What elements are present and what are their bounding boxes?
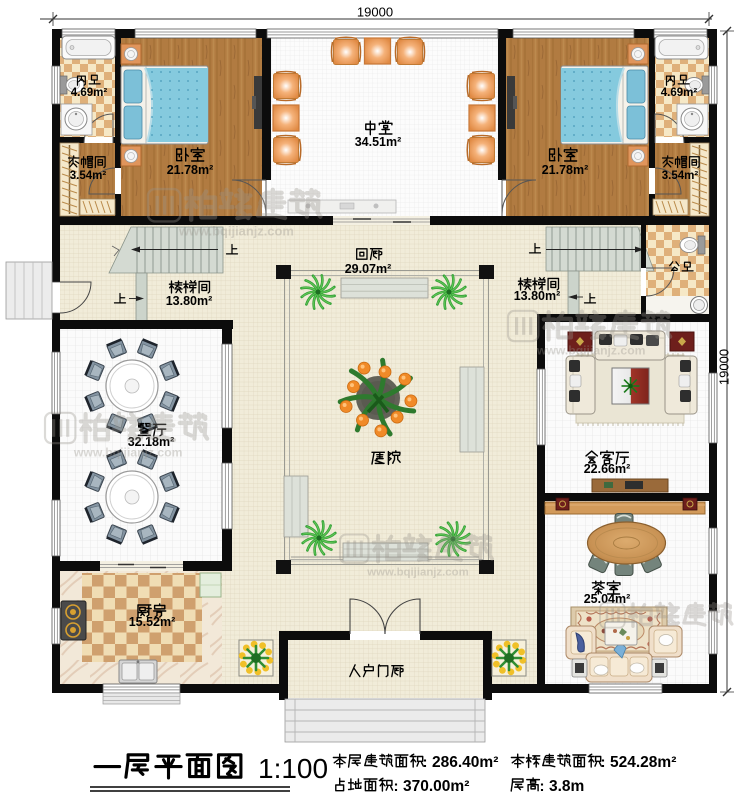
svg-text:21.78m²: 21.78m² [167,163,214,177]
svg-text:13.80m²: 13.80m² [514,289,561,303]
svg-text:3.8m: 3.8m [549,778,584,795]
svg-text:www.bqijianjz.com: www.bqijianjz.com [73,446,183,460]
svg-text:370.00m²: 370.00m² [403,778,469,795]
svg-text::: : [423,754,428,771]
svg-text:1:100: 1:100 [258,753,328,784]
svg-text:29.07m²: 29.07m² [345,262,392,276]
svg-text:www.bqijianjz.com: www.bqijianjz.com [366,567,468,579]
svg-text:15.52m²: 15.52m² [129,615,176,629]
svg-text:3.54m²: 3.54m² [662,170,699,182]
svg-text:21.78m²: 21.78m² [542,163,589,177]
svg-text:13.80m²: 13.80m² [166,294,213,308]
svg-text:524.28m²: 524.28m² [610,754,676,771]
svg-text:19000: 19000 [357,5,393,20]
svg-text:www.bqijianjz.com: www.bqijianjz.com [536,344,646,358]
svg-text:286.40m²: 286.40m² [432,754,498,771]
svg-text::: : [601,754,606,771]
svg-text:34.51m²: 34.51m² [355,135,402,149]
svg-text:19000: 19000 [717,349,732,385]
svg-text:www.bqijianjz.com: www.bqijianjz.com [178,224,294,239]
svg-text:3.54m²: 3.54m² [70,170,107,182]
svg-text::: : [394,778,399,795]
svg-text:4.69m²: 4.69m² [661,87,698,99]
svg-text:22.66m²: 22.66m² [584,462,631,476]
svg-text::: : [540,778,545,795]
svg-text:4.69m²: 4.69m² [71,87,108,99]
